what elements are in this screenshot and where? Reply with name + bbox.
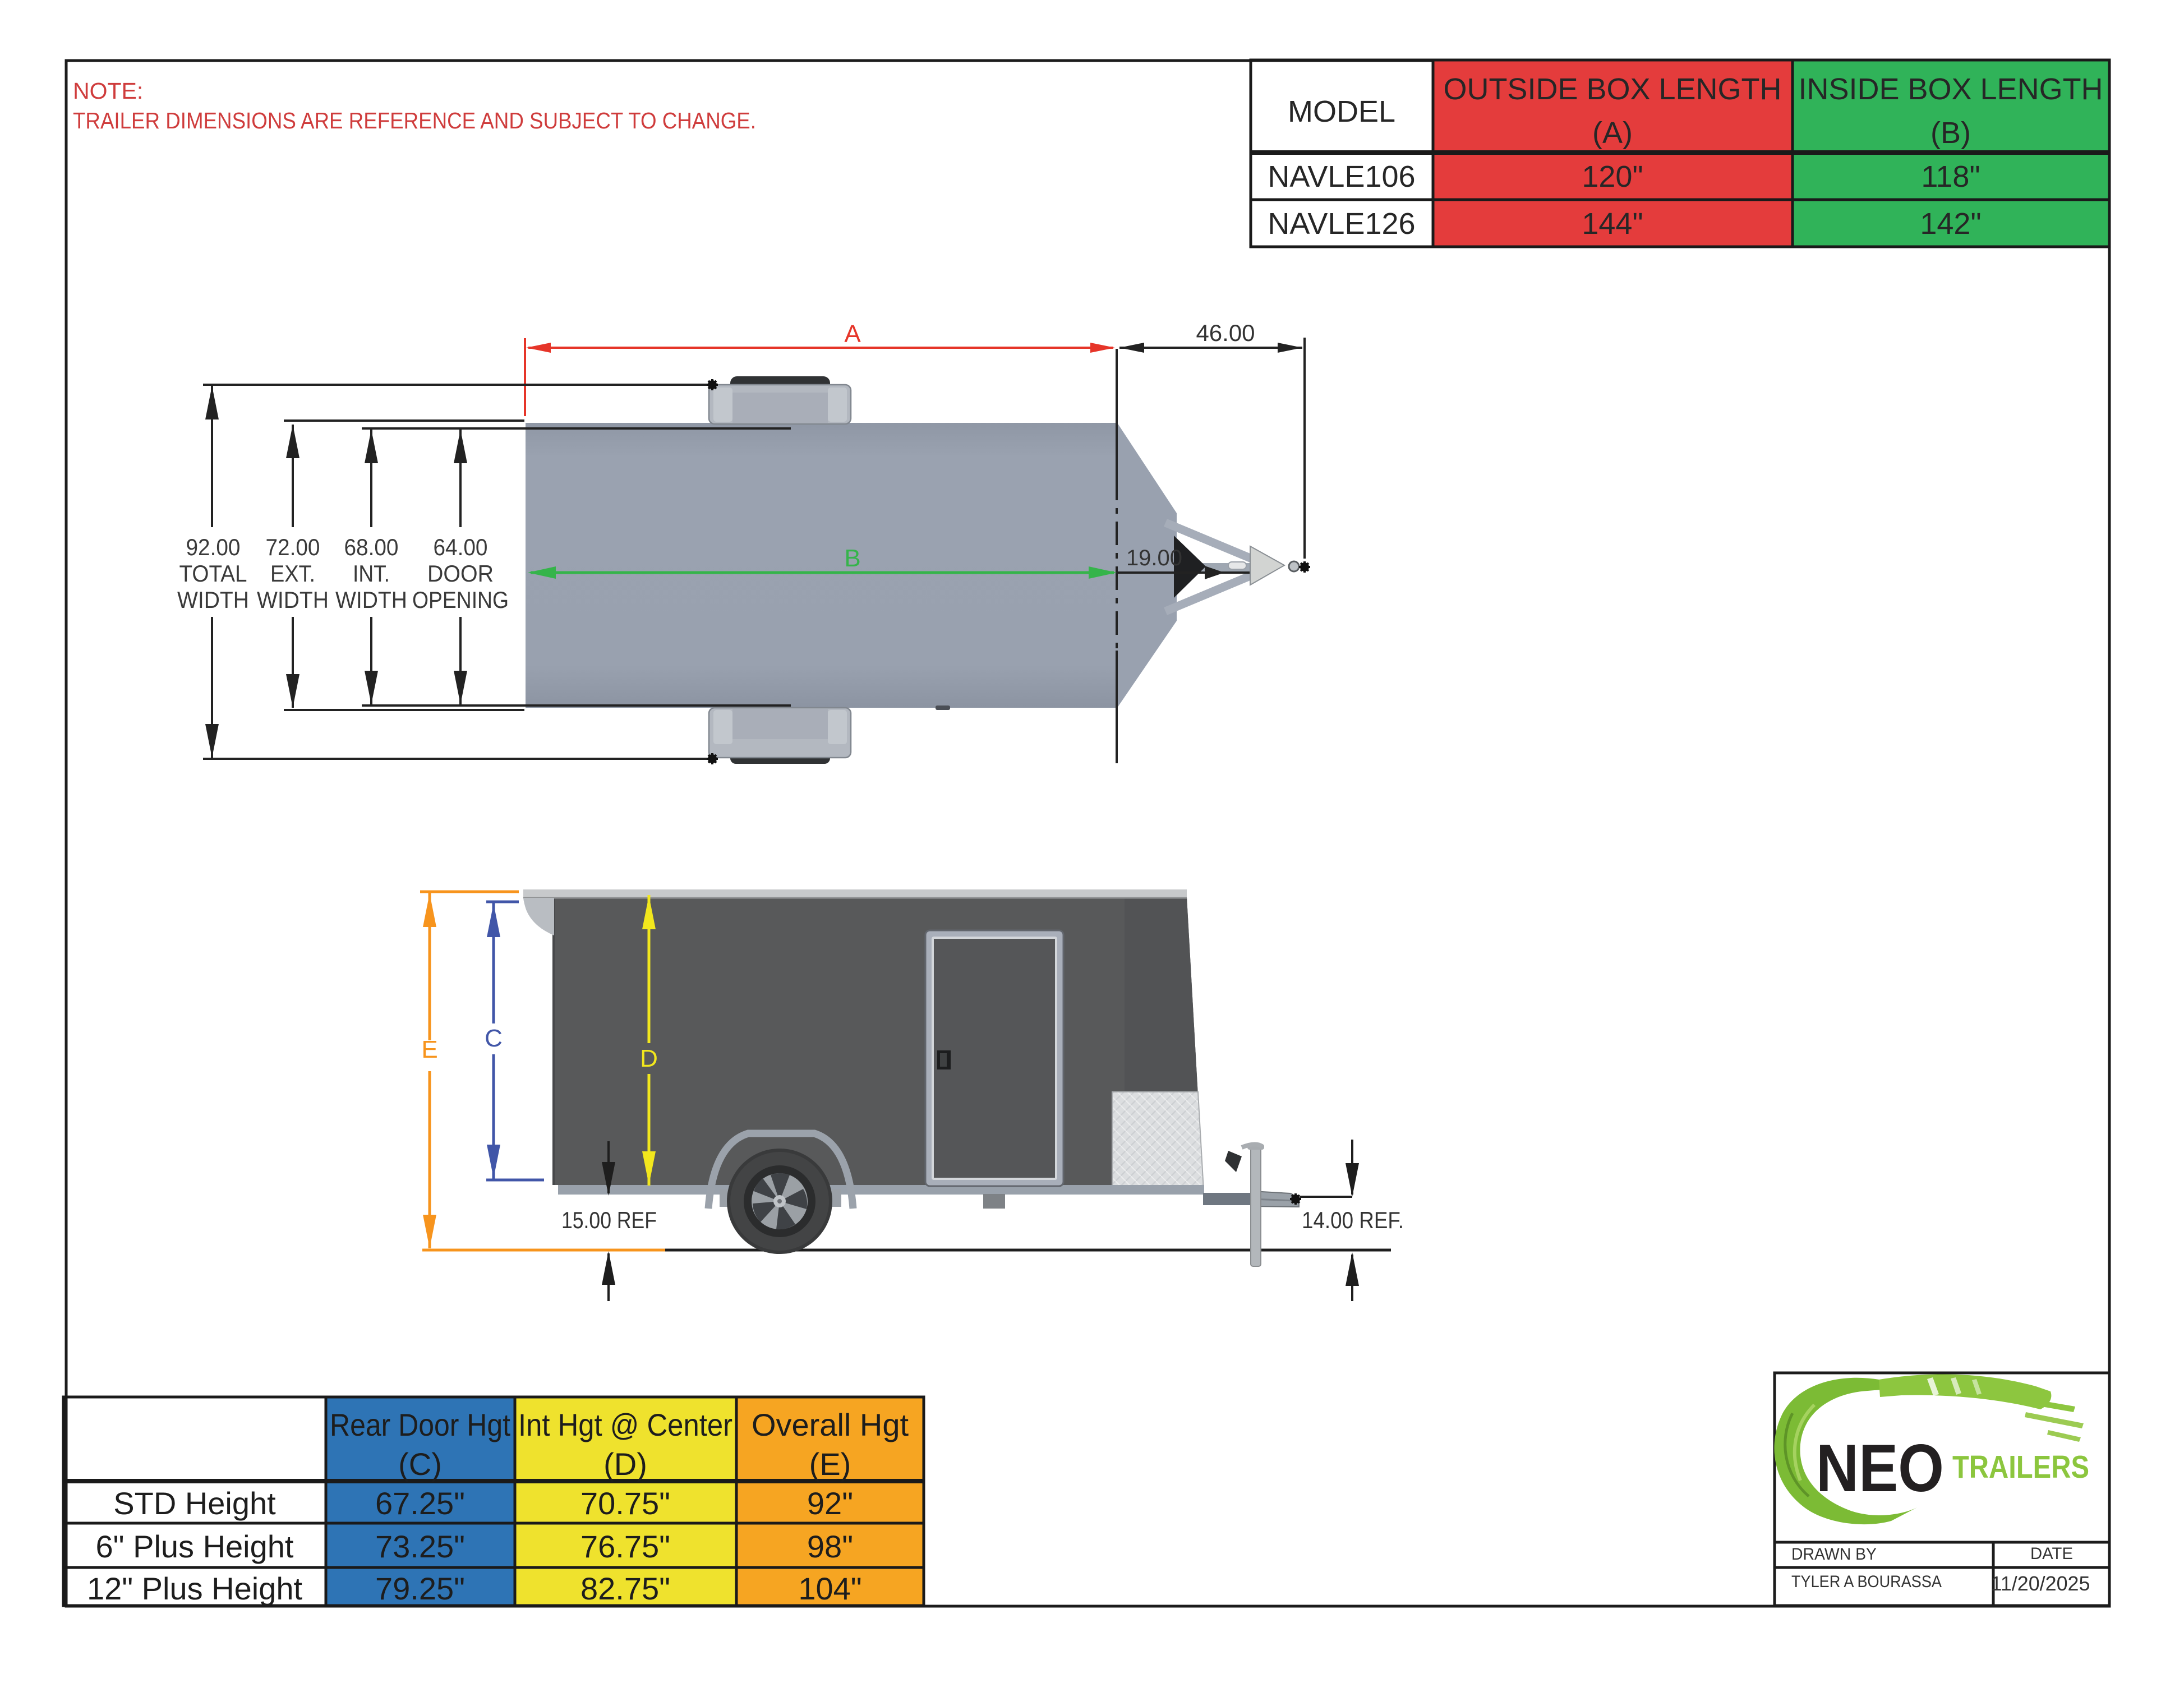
svg-text:98": 98" [807,1529,853,1564]
svg-text:142": 142" [1920,207,1981,241]
svg-text:Rear Door Hgt: Rear Door Hgt [330,1407,510,1442]
svg-text:E: E [421,1036,437,1063]
svg-text:NAVLE126: NAVLE126 [1268,207,1415,241]
svg-text:Int Hgt @ Center: Int Hgt @ Center [518,1407,732,1442]
svg-text:76.75": 76.75" [580,1529,670,1564]
svg-text:(E): (E) [809,1446,851,1482]
svg-text:6" Plus Height: 6" Plus Height [96,1529,294,1564]
svg-text:INT.: INT. [353,560,390,587]
svg-text:(C): (C) [398,1446,442,1482]
svg-text:INSIDE BOX LENGTH: INSIDE BOX LENGTH [1798,72,2103,106]
svg-text:TRAILER DIMENSIONS ARE REFEREN: TRAILER DIMENSIONS ARE REFERENCE AND SUB… [73,108,756,133]
svg-text:STD Height: STD Height [113,1486,276,1521]
svg-text:MODEL: MODEL [1288,95,1395,128]
svg-text:68.00: 68.00 [344,534,399,560]
svg-text:NAVLE106: NAVLE106 [1268,160,1415,193]
svg-text:OUTSIDE BOX LENGTH: OUTSIDE BOX LENGTH [1443,72,1781,106]
svg-text:(A): (A) [1592,116,1633,150]
svg-text:OPENING: OPENING [412,587,509,613]
svg-text:TYLER A BOURASSA: TYLER A BOURASSA [1791,1573,1942,1591]
svg-text:82.75": 82.75" [580,1571,670,1606]
svg-text:EXT.: EXT. [270,560,315,587]
svg-text:A: A [844,320,861,348]
svg-text:92": 92" [807,1486,853,1521]
svg-text:DOOR: DOOR [427,560,494,587]
svg-text:72.00: 72.00 [266,534,320,560]
svg-text:(B): (B) [1930,116,1971,150]
svg-text:NEO: NEO [1816,1431,1944,1506]
svg-text:DRAWN BY: DRAWN BY [1791,1545,1877,1564]
svg-text:TRAILERS: TRAILERS [1952,1449,2089,1485]
svg-text:92.00: 92.00 [186,534,241,560]
svg-text:120": 120" [1582,160,1643,193]
svg-text:NOTE:: NOTE: [73,78,143,104]
svg-text:WIDTH: WIDTH [335,587,407,613]
svg-text:WIDTH: WIDTH [257,587,329,613]
svg-text:19.00: 19.00 [1126,546,1182,570]
svg-text:B: B [844,545,860,572]
svg-text:70.75": 70.75" [580,1486,670,1521]
svg-text:Overall Hgt: Overall Hgt [752,1407,909,1442]
svg-text:73.25": 73.25" [375,1529,465,1564]
svg-text:11/20/2025: 11/20/2025 [1991,1572,2090,1595]
svg-text:104": 104" [798,1571,861,1606]
svg-text:79.25": 79.25" [375,1571,465,1606]
svg-text:67.25": 67.25" [375,1486,465,1521]
svg-text:TOTAL: TOTAL [179,560,247,587]
svg-text:46.00: 46.00 [1196,320,1255,346]
svg-text:WIDTH: WIDTH [177,587,249,613]
svg-text:(D): (D) [603,1446,647,1482]
svg-text:144": 144" [1582,207,1643,241]
svg-text:14.00 REF.: 14.00 REF. [1302,1207,1404,1233]
svg-text:12" Plus Height: 12" Plus Height [87,1571,303,1606]
svg-text:D: D [640,1045,658,1072]
svg-text:64.00: 64.00 [434,534,488,560]
svg-text:15.00 REF: 15.00 REF [561,1207,657,1233]
svg-text:118": 118" [1921,160,1980,193]
svg-text:DATE: DATE [2030,1544,2073,1563]
svg-text:C: C [485,1025,503,1052]
